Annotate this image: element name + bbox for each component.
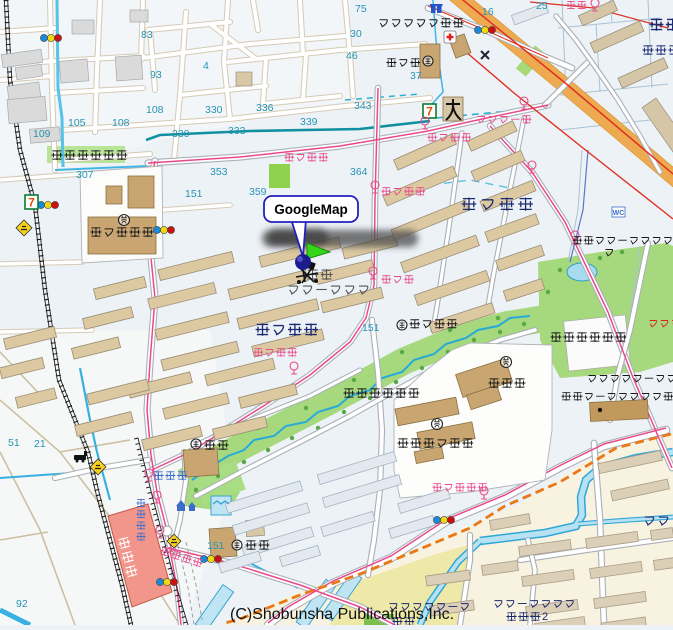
svg-text:75: 75 [355,3,367,15]
svg-text:83: 83 [141,29,153,41]
svg-text:151: 151 [207,540,225,552]
svg-text:7: 7 [28,196,35,210]
svg-text:364: 364 [350,166,368,178]
svg-text:339: 339 [300,116,318,128]
svg-text:343: 343 [354,100,372,112]
svg-text:92: 92 [16,598,28,610]
svg-text:330: 330 [172,128,190,140]
svg-text:7: 7 [426,105,433,119]
svg-text:25: 25 [536,0,548,12]
svg-text:105: 105 [68,117,86,129]
svg-text:16: 16 [482,6,494,18]
svg-text:4: 4 [203,60,209,72]
svg-text:333: 333 [228,125,246,137]
svg-text:151: 151 [185,188,203,200]
svg-text:108: 108 [146,104,164,116]
svg-text:151: 151 [362,322,380,334]
svg-text:93: 93 [150,69,162,81]
svg-text:108: 108 [112,117,130,129]
svg-text:330: 330 [205,104,223,116]
svg-text:353: 353 [210,166,228,178]
svg-text:359: 359 [249,186,267,198]
svg-text:GoogleMap: GoogleMap [274,202,348,217]
svg-text:(C)Shobunsha Publications,Inc.: (C)Shobunsha Publications,Inc. [230,606,454,623]
svg-text:109: 109 [33,128,51,140]
svg-text:307: 307 [76,169,94,181]
svg-text:46: 46 [346,50,358,62]
svg-text:2: 2 [542,611,548,623]
svg-text:WC: WC [613,210,625,217]
svg-text:37: 37 [410,70,422,82]
svg-text:51: 51 [8,437,20,449]
svg-text:21: 21 [34,438,46,450]
svg-text:336: 336 [256,102,274,114]
svg-text:30: 30 [350,28,362,40]
